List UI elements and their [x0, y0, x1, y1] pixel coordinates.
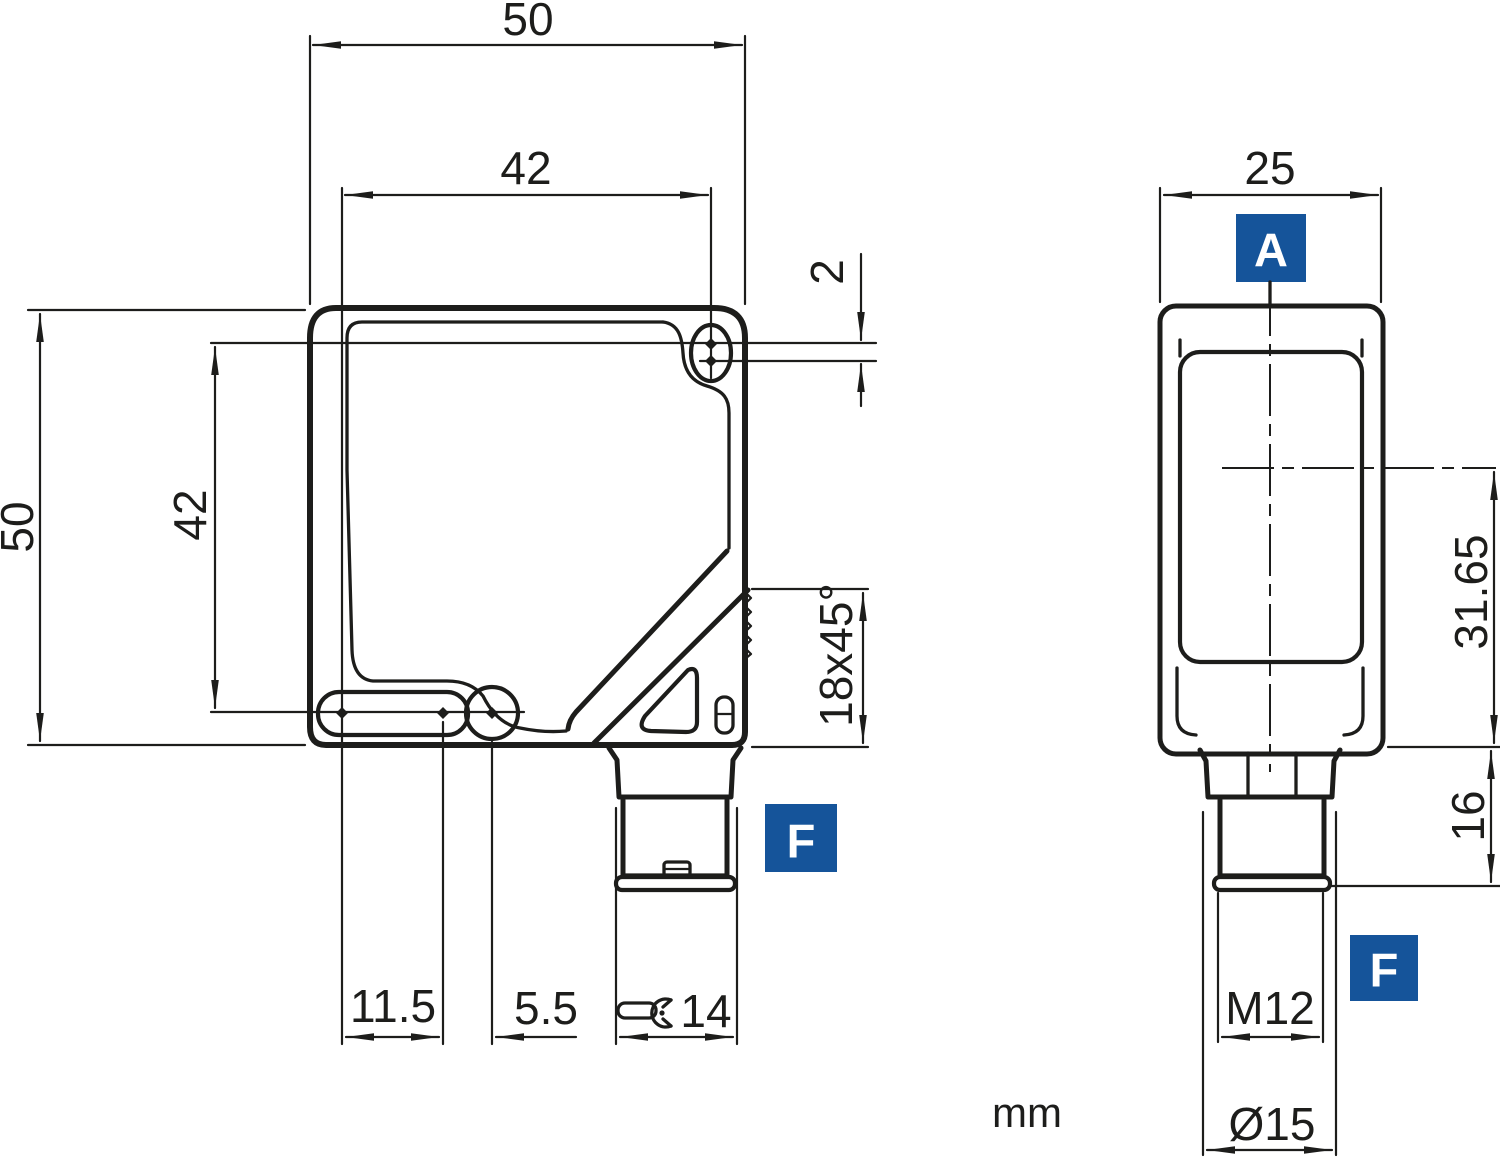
- dim-label-slot-pitch: 11.5: [350, 980, 436, 1032]
- front-connector: [609, 748, 741, 890]
- front-body-outline: [310, 308, 751, 745]
- detail-marker-a: A: [1236, 214, 1306, 306]
- chamfer-triangle-detail: [642, 669, 697, 732]
- unit-label: mm: [992, 1089, 1062, 1136]
- dim-label-front-height: 50: [0, 501, 43, 552]
- front-mounting-holes: [318, 325, 731, 739]
- dim-label-front-width: 50: [502, 0, 553, 45]
- dim-label-thread-size: M12: [1225, 982, 1314, 1034]
- dim-label-optical-axis: 31.65: [1445, 534, 1497, 649]
- dim-connector-length: 16: [1332, 751, 1500, 886]
- dim-label-side-depth: 25: [1244, 142, 1295, 194]
- dim-label-front-hole-pitch-v: 42: [164, 489, 216, 540]
- dim-optical-axis: 31.65: [1388, 472, 1500, 747]
- dim-label-connector-length: 16: [1442, 790, 1494, 841]
- dim-chamfer: 18x45°: [752, 583, 868, 747]
- badge-letter: A: [1254, 224, 1288, 277]
- sensor-dimension-drawing: 50 42 50 42 2: [0, 0, 1500, 1157]
- dim-label-chamfer: 18x45°: [810, 583, 862, 727]
- detail-marker-f-front: F: [765, 804, 837, 872]
- chamfer-inner-line: [568, 551, 727, 729]
- dim-front-height: 50: [0, 310, 305, 745]
- dim-label-collar-diameter: Ø15: [1229, 1098, 1316, 1150]
- dim-hole-offset: 2: [700, 254, 876, 406]
- dim-slot-to-hole: 5.5: [492, 742, 578, 1044]
- dim-label-front-hole-pitch-h: 42: [500, 142, 551, 194]
- side-view: 25 A 31.65 16 M12: [1160, 142, 1500, 1155]
- m12-thread-barrel: [1220, 800, 1324, 875]
- hex-nut: [1200, 750, 1340, 797]
- detail-marker-f-side: F: [1350, 935, 1418, 1001]
- front-view: 50 42 50 42 2: [0, 0, 876, 1044]
- side-body-outline: [1160, 306, 1383, 754]
- badge-letter: F: [787, 815, 816, 868]
- dim-label-hole-offset: 2: [801, 259, 853, 285]
- dim-label-slot-to-hole: 5.5: [514, 982, 578, 1034]
- badge-letter: F: [1370, 944, 1399, 997]
- dim-slot-pitch: 11.5: [346, 722, 443, 1044]
- wrench-icon: [618, 999, 671, 1027]
- technical-drawing-page: 50 42 50 42 2: [0, 0, 1500, 1157]
- centerlines: [1222, 284, 1496, 772]
- dim-front-hole-pitch-h: 42: [342, 142, 711, 1044]
- dim-front-hole-pitch-v: 42: [164, 343, 876, 712]
- dim-wrench-size: 14: [616, 808, 737, 1044]
- dim-thread-size: M12: [1218, 893, 1323, 1042]
- dim-label-wrench-size: 14: [680, 985, 731, 1037]
